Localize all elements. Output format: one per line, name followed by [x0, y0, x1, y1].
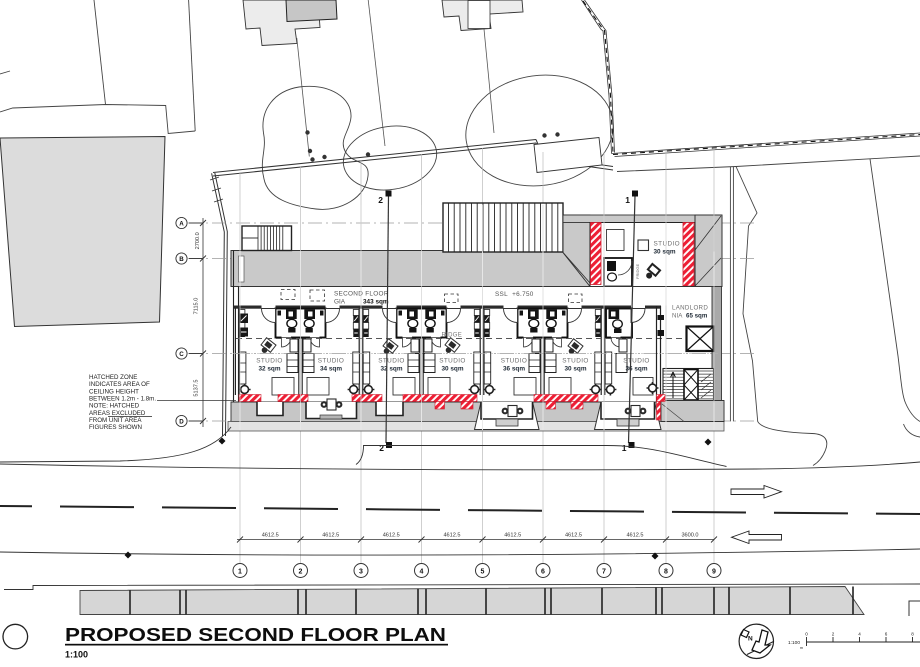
svg-text:STUDIO: STUDIO — [562, 358, 589, 365]
svg-text:4612.5: 4612.5 — [383, 533, 400, 539]
svg-text:INDICATES AREA OF: INDICATES AREA OF — [89, 381, 150, 388]
svg-text:SSL +6.750: SSL +6.750 — [495, 291, 534, 298]
svg-text:STUDIO: STUDIO — [501, 358, 528, 365]
svg-text:8: 8 — [664, 568, 668, 575]
svg-text:RIDGE: RIDGE — [442, 333, 463, 339]
svg-text:FIGURES SHOWN: FIGURES SHOWN — [89, 424, 142, 431]
svg-text:7115.0: 7115.0 — [194, 298, 200, 315]
svg-text:STUDIO: STUDIO — [439, 358, 466, 365]
svg-text:2: 2 — [832, 632, 835, 637]
svg-text:B: B — [179, 256, 184, 263]
svg-text:FROM UNIT AREA: FROM UNIT AREA — [89, 417, 142, 424]
svg-text:AREAS EXCLUDED: AREAS EXCLUDED — [89, 410, 146, 417]
svg-text:STUDIO: STUDIO — [378, 358, 405, 365]
svg-text:STUDIO: STUDIO — [318, 358, 345, 365]
svg-text:m: m — [800, 646, 803, 650]
svg-text:30 sqm: 30 sqm — [564, 366, 586, 373]
svg-text:65 sqm: 65 sqm — [686, 313, 708, 320]
svg-text:4612.5: 4612.5 — [504, 533, 521, 539]
svg-text:2: 2 — [379, 443, 384, 453]
svg-text:STUDIO: STUDIO — [623, 358, 650, 365]
svg-text:1: 1 — [238, 568, 242, 575]
svg-text:C: C — [179, 351, 184, 358]
svg-text:1: 1 — [625, 195, 630, 205]
svg-text:30 sqm: 30 sqm — [441, 366, 463, 373]
svg-text:D: D — [179, 418, 184, 425]
svg-text:4612.5: 4612.5 — [626, 533, 643, 539]
svg-text:5: 5 — [481, 568, 485, 575]
svg-text:BETWEEN 1.2m - 1.8m.: BETWEEN 1.2m - 1.8m. — [89, 395, 156, 402]
svg-text:STUDIO: STUDIO — [256, 358, 283, 365]
svg-text:FRIDGE: FRIDGE — [635, 264, 640, 279]
svg-text:STUDIO: STUDIO — [654, 241, 681, 248]
svg-text:3: 3 — [359, 568, 363, 575]
svg-text:34 sqm: 34 sqm — [320, 366, 342, 373]
svg-text:4: 4 — [420, 568, 424, 575]
svg-text:0: 0 — [805, 632, 808, 637]
svg-text:32 sqm: 32 sqm — [380, 366, 402, 373]
svg-text:4612.5: 4612.5 — [322, 533, 339, 539]
svg-text:9: 9 — [712, 568, 716, 575]
svg-text:2: 2 — [378, 195, 383, 205]
svg-text:NOTE: HATCHED: NOTE: HATCHED — [89, 403, 140, 410]
svg-text:3600.0: 3600.0 — [681, 533, 698, 539]
svg-text:32 sqm: 32 sqm — [258, 366, 280, 373]
svg-text:1:100: 1:100 — [788, 640, 800, 646]
svg-text:30 sqm: 30 sqm — [654, 249, 676, 256]
svg-text:1: 1 — [622, 443, 627, 453]
svg-text:HATCHED ZONE: HATCHED ZONE — [89, 374, 137, 381]
svg-text:A: A — [179, 220, 184, 227]
svg-text:4612.5: 4612.5 — [443, 533, 460, 539]
svg-text:LANDLORD: LANDLORD — [672, 305, 708, 312]
svg-text:GIA: GIA — [334, 299, 346, 306]
svg-text:2700.0: 2700.0 — [195, 232, 201, 249]
svg-text:4612.5: 4612.5 — [262, 533, 279, 539]
svg-text:36 sqm: 36 sqm — [503, 366, 525, 373]
svg-text:SECOND FLOOR: SECOND FLOOR — [334, 291, 389, 298]
svg-text:2: 2 — [299, 568, 303, 575]
svg-text:4612.5: 4612.5 — [565, 533, 582, 539]
svg-text:CEILING HEIGHT: CEILING HEIGHT — [89, 388, 139, 395]
svg-text:36 sqm: 36 sqm — [625, 366, 647, 373]
svg-text:343 sqm: 343 sqm — [363, 299, 389, 306]
svg-text:7: 7 — [602, 568, 606, 575]
svg-text:4: 4 — [858, 632, 861, 637]
svg-text:NIA: NIA — [672, 313, 683, 320]
svg-text:1:100: 1:100 — [65, 650, 88, 660]
svg-text:N: N — [748, 636, 753, 643]
svg-text:6: 6 — [885, 632, 888, 637]
svg-text:PROPOSED SECOND FLOOR PLAN: PROPOSED SECOND FLOOR PLAN — [65, 624, 446, 645]
svg-text:5137.5: 5137.5 — [194, 379, 200, 396]
svg-text:6: 6 — [541, 568, 545, 575]
svg-text:8: 8 — [911, 632, 914, 637]
